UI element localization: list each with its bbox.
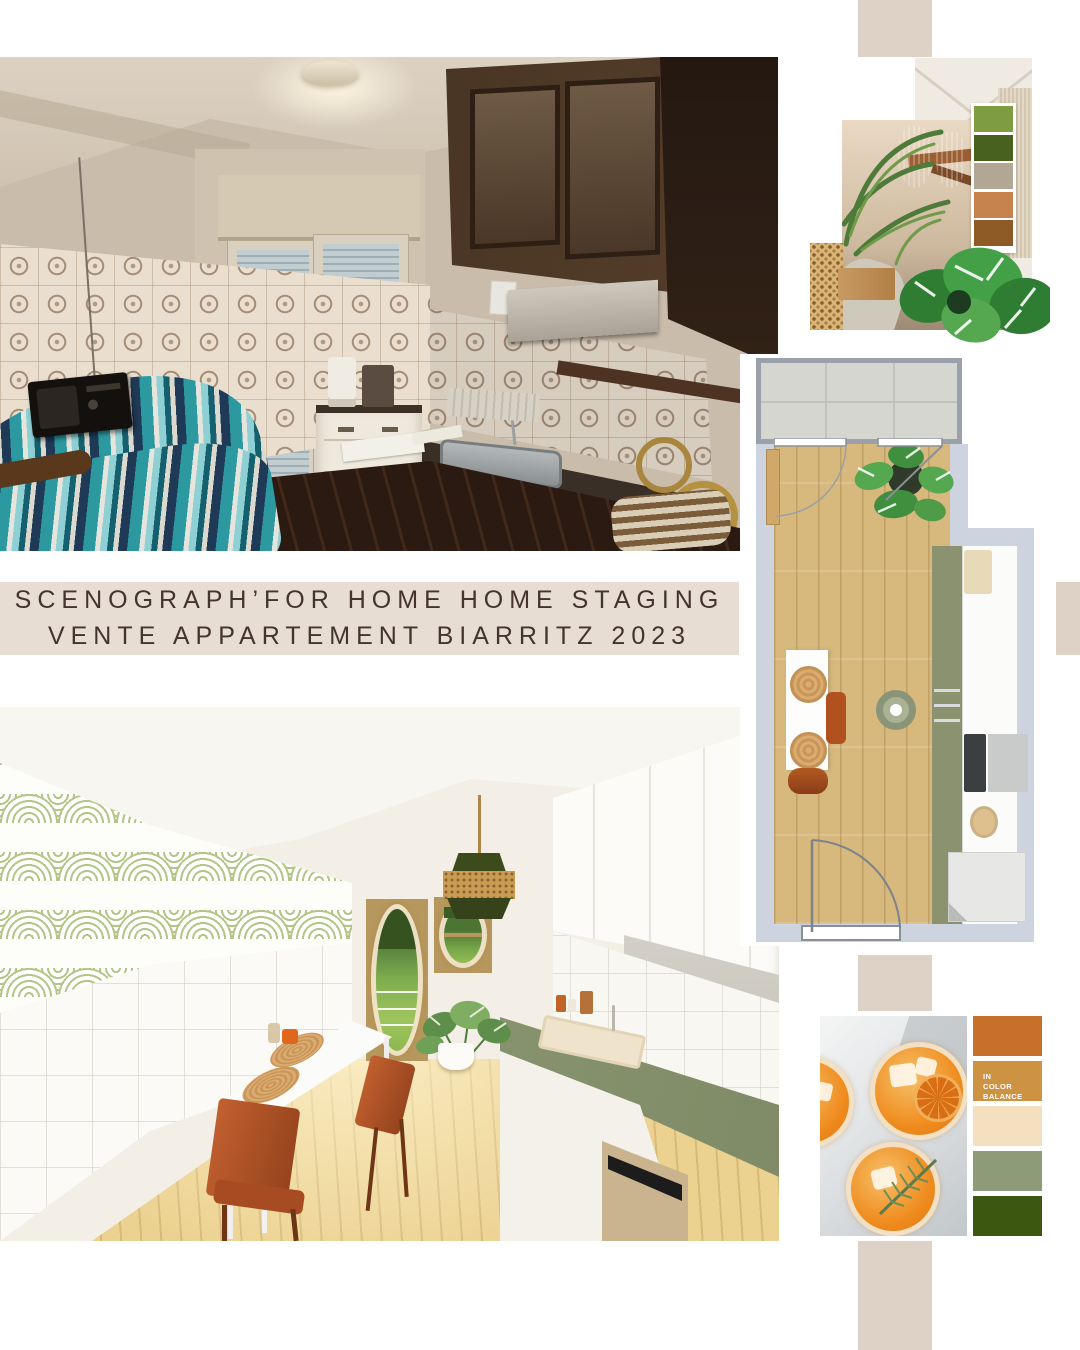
plan-sink-bowl bbox=[970, 806, 998, 838]
plan-balcony bbox=[756, 358, 962, 444]
plan-oven bbox=[988, 734, 1028, 792]
pendant-lamp-top bbox=[452, 853, 506, 872]
beige-jar bbox=[268, 1023, 280, 1043]
plant-pot bbox=[438, 1043, 474, 1070]
banner-line-2: VENTE APPARTEMENT BIARRITZ 2023 bbox=[48, 622, 691, 651]
palette-swatch bbox=[974, 163, 1013, 189]
banner-line-1: SCENOGRAPH’FOR HOME HOME STAGING bbox=[15, 586, 725, 615]
moodboard-color-palette bbox=[971, 103, 1016, 253]
rosemary-sprig bbox=[870, 1144, 950, 1224]
home-staging-poster: SCENOGRAPH’FOR HOME HOME STAGING VENTE A… bbox=[0, 0, 1080, 1350]
color-balance-label: IN COLOR BALANCE bbox=[983, 1072, 1022, 1101]
beige-block-banner-right bbox=[1052, 582, 1080, 655]
balance-swatch bbox=[973, 1196, 1042, 1236]
moodboard-collage bbox=[800, 58, 1050, 343]
pendant-cord bbox=[478, 795, 481, 855]
balance-swatch bbox=[973, 1106, 1042, 1146]
plan-ceiling-light bbox=[876, 690, 916, 730]
plan-fridge bbox=[948, 852, 1026, 922]
beige-block-top bbox=[858, 0, 932, 57]
plan-doors-top bbox=[774, 438, 950, 550]
brass-lid bbox=[636, 437, 692, 493]
plan-placemat bbox=[790, 732, 827, 769]
plan-cutting-board bbox=[964, 550, 992, 594]
pendant-lamp-rattan-band bbox=[443, 871, 515, 899]
counter-jar bbox=[580, 991, 593, 1014]
cabinet-glass-pane bbox=[470, 85, 560, 250]
cocktail-glass bbox=[820, 1056, 854, 1148]
plan-door-bottom bbox=[796, 832, 908, 944]
color-balance-board: IN COLOR BALANCE bbox=[820, 1016, 1042, 1236]
monstera-leaves bbox=[885, 236, 1050, 343]
small-appliance bbox=[362, 365, 394, 407]
pendant-lamp-bottom bbox=[447, 898, 511, 919]
after-photo-staged-kitchen bbox=[0, 707, 779, 1241]
floor-plan bbox=[740, 354, 1056, 946]
balance-swatch bbox=[973, 1151, 1042, 1191]
cocktails-photo bbox=[820, 1016, 967, 1236]
faucet bbox=[612, 1005, 615, 1031]
dried-orange-slice bbox=[914, 1074, 962, 1122]
beige-block-bottom bbox=[858, 1241, 932, 1350]
chair-leg bbox=[222, 1205, 227, 1241]
balance-swatch: IN COLOR BALANCE bbox=[973, 1061, 1042, 1101]
door-lintel bbox=[218, 175, 420, 241]
range-hood bbox=[508, 280, 658, 342]
ceiling-lamp bbox=[302, 61, 358, 85]
plan-chair bbox=[788, 768, 828, 794]
orange-cup bbox=[282, 1029, 298, 1044]
cabinet-glass-pane bbox=[565, 77, 660, 260]
plan-grill-lines bbox=[934, 684, 960, 734]
beige-block-middle bbox=[858, 955, 932, 1011]
before-photo-old-kitchen bbox=[0, 57, 778, 551]
plan-chair bbox=[826, 692, 846, 744]
palette-swatch bbox=[974, 106, 1013, 132]
counter-jar bbox=[556, 995, 566, 1012]
plan-placemat bbox=[790, 666, 827, 703]
radio bbox=[27, 372, 132, 438]
palette-swatch bbox=[974, 135, 1013, 161]
balance-swatch bbox=[973, 1016, 1042, 1056]
plan-cooktop bbox=[964, 734, 986, 792]
title-banner: SCENOGRAPH’FOR HOME HOME STAGING VENTE A… bbox=[0, 582, 739, 655]
counter-jar bbox=[568, 999, 576, 1012]
coffee-maker bbox=[328, 357, 356, 407]
palette-swatch bbox=[974, 192, 1013, 218]
striped-pouf bbox=[610, 488, 732, 551]
